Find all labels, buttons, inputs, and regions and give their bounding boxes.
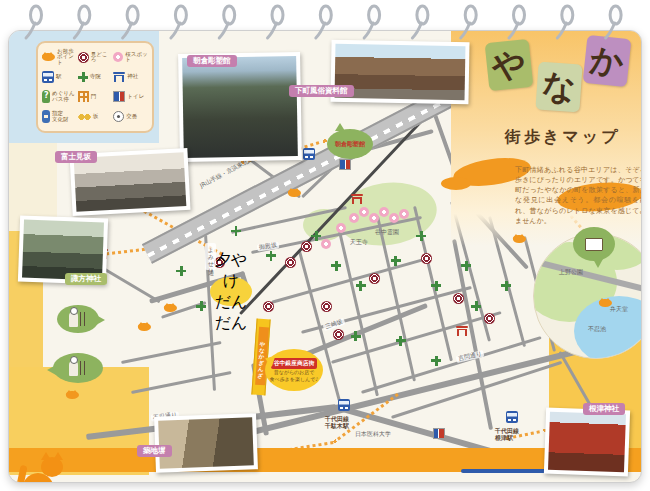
bus-icon bbox=[42, 90, 50, 103]
cloud-blob bbox=[441, 177, 471, 190]
photo-tsukijibei-image bbox=[158, 417, 254, 468]
legend-item: 交番 bbox=[113, 107, 148, 126]
shitamachi-map-bubble bbox=[573, 227, 615, 261]
sight-icon bbox=[78, 52, 89, 63]
badge-icon bbox=[263, 301, 274, 312]
bubble-tail bbox=[42, 365, 56, 375]
legend-item: めぐりん バス停 bbox=[42, 88, 77, 107]
photo-tsukijibei bbox=[154, 413, 258, 473]
flower-icon bbox=[321, 239, 331, 249]
cat-icon bbox=[66, 391, 79, 399]
bubble-tail bbox=[96, 315, 110, 325]
cat-ear bbox=[53, 447, 63, 460]
temple-icon bbox=[351, 331, 361, 341]
legend-item-label: めぐりん バス停 bbox=[52, 91, 75, 103]
map-description: 下町情緒あふれる谷中エリアは、そぞろ歩きにぴったりのエリアです。かつて寺町だった… bbox=[515, 165, 642, 226]
temple-icon bbox=[356, 281, 366, 291]
road-line bbox=[377, 216, 416, 382]
flower-icon bbox=[369, 213, 379, 223]
cat-icon bbox=[138, 323, 151, 331]
station-icon bbox=[42, 71, 54, 83]
cat-head bbox=[41, 457, 63, 477]
legend-item-label: 駅 bbox=[56, 74, 62, 80]
character-bubble bbox=[53, 353, 103, 383]
temple-icon bbox=[196, 301, 206, 311]
museum-illustration bbox=[585, 238, 603, 251]
temple-icon bbox=[176, 266, 186, 276]
cat-ear bbox=[41, 447, 51, 460]
toilet-icon bbox=[433, 428, 445, 439]
bubble-tail bbox=[593, 259, 603, 273]
temple-icon bbox=[501, 281, 511, 291]
station-icon bbox=[338, 399, 350, 411]
gate-icon bbox=[78, 91, 89, 102]
badge-icon bbox=[285, 257, 296, 268]
photo-nezu-image bbox=[548, 412, 626, 473]
yanaka-ginza-callout: 谷中銀座商店街 昔ながらのお店で 食べ歩きを楽しんで♪ bbox=[265, 349, 323, 391]
vertical-text-marks bbox=[80, 361, 88, 375]
road-line bbox=[121, 341, 221, 363]
legend-item-label: 見どころ bbox=[91, 52, 113, 64]
temple-icon bbox=[431, 356, 441, 366]
photo-asakura-label: 朝倉彫塑館 bbox=[187, 55, 237, 67]
legend-item: 見どころ bbox=[78, 48, 113, 67]
badge-icon bbox=[369, 273, 380, 284]
culture-icon bbox=[42, 110, 50, 123]
legend-item-label: お散歩 ポイント bbox=[57, 49, 77, 66]
temple-icon bbox=[416, 231, 426, 241]
legend-item-label: 神社 bbox=[127, 74, 138, 80]
legend-item: トイレ bbox=[113, 88, 148, 107]
asakura-bubble-label: 朝倉彫塑館 bbox=[335, 141, 365, 148]
legend-item-label: 桜スポット bbox=[125, 52, 148, 64]
slope-icon bbox=[78, 113, 91, 121]
legend-item: 指定 文化財 bbox=[42, 107, 77, 126]
binder-rings bbox=[0, 0, 650, 46]
map-text-label: 不忍池 bbox=[586, 326, 608, 333]
flower-icon bbox=[336, 223, 346, 233]
map-text-label: 谷中霊園 bbox=[373, 229, 401, 236]
character-bubble bbox=[57, 305, 99, 333]
title-char: な bbox=[541, 63, 578, 110]
cat-icon bbox=[164, 304, 177, 312]
callout-line: 食べ歩きを楽しんで♪ bbox=[270, 377, 319, 383]
torii-icon bbox=[456, 326, 468, 336]
legend-item: 駅 bbox=[42, 68, 77, 87]
photo-asakura bbox=[178, 52, 302, 162]
title-char-tile: や bbox=[485, 39, 534, 91]
legend-item-label: 交番 bbox=[126, 114, 137, 120]
map-text-label: 御殿坂 bbox=[257, 242, 280, 252]
badge-icon bbox=[453, 293, 464, 304]
shrine-icon bbox=[113, 72, 125, 82]
badge-icon bbox=[301, 241, 312, 252]
road-line bbox=[131, 371, 231, 393]
legend-item: 神社 bbox=[113, 68, 148, 87]
photo-nezu bbox=[544, 408, 630, 477]
flower-icon bbox=[379, 207, 389, 217]
badge-icon bbox=[321, 301, 332, 312]
station-icon bbox=[506, 411, 518, 423]
map-text-label: 言問通り bbox=[456, 350, 485, 363]
legend-item: 桜スポット bbox=[113, 48, 148, 67]
map-legend: お散歩 ポイント見どころ桜スポット駅寺院神社めぐりん バス停門トイレ指定 文化財… bbox=[36, 41, 154, 133]
title-char: や bbox=[490, 41, 528, 89]
temple-icon bbox=[396, 336, 406, 346]
temple-icon bbox=[266, 251, 276, 261]
photo-asakura-image bbox=[182, 56, 298, 158]
temple-icon bbox=[471, 301, 481, 311]
photo-tsukijibei-label: 築地塀 bbox=[137, 445, 172, 457]
map-text-label: 天王寺 bbox=[348, 239, 370, 246]
callout-line: 昔ながらのお店で bbox=[274, 370, 315, 376]
cat-icon bbox=[42, 53, 55, 61]
callout-title: 谷中銀座商店街 bbox=[271, 358, 318, 369]
temple-icon bbox=[331, 261, 341, 271]
photo-shitamachi-label: 下町風俗資料館 bbox=[289, 85, 354, 97]
koban-icon bbox=[113, 111, 124, 122]
legend-item-label: 指定 文化財 bbox=[52, 111, 69, 123]
torii-icon bbox=[351, 194, 363, 204]
badge-icon bbox=[484, 313, 495, 324]
toilet-icon bbox=[113, 91, 125, 102]
flower-icon bbox=[389, 213, 399, 223]
person-illustration bbox=[69, 361, 78, 376]
vertical-text-marks bbox=[80, 312, 88, 326]
legend-item: お散歩 ポイント bbox=[42, 48, 77, 67]
chiyoda-subway-line bbox=[461, 469, 555, 473]
flower-icon bbox=[349, 213, 359, 223]
asakura-map-bubble: 朝倉彫塑館 bbox=[327, 129, 373, 159]
map-text-label: 弁天堂 bbox=[608, 306, 630, 313]
temple-icon bbox=[431, 281, 441, 291]
legend-item-label: 坂 bbox=[93, 114, 99, 120]
map-text-label: 三崎坂 bbox=[322, 318, 345, 331]
cat-silhouette bbox=[19, 451, 77, 483]
toilet-icon bbox=[339, 159, 351, 170]
temple-icon bbox=[461, 261, 471, 271]
station-label: 千代田線 千駄木駅 bbox=[325, 415, 349, 429]
legend-item: 寺院 bbox=[78, 68, 113, 87]
temple-icon bbox=[391, 256, 401, 266]
legend-item-label: トイレ bbox=[127, 94, 144, 100]
legend-item: 門 bbox=[78, 88, 113, 107]
title-char-tile: な bbox=[535, 62, 582, 113]
cat-icon bbox=[288, 189, 301, 197]
flower-icon bbox=[359, 207, 369, 217]
legend-item: 坂 bbox=[78, 107, 113, 126]
yuyake-dandan-bubble: 夕やけ だんだん bbox=[210, 277, 252, 306]
sakura-icon bbox=[113, 52, 123, 62]
temple-icon bbox=[78, 72, 88, 82]
station-icon bbox=[303, 148, 315, 160]
photo-nezu-label: 根津神社 bbox=[583, 403, 625, 415]
legend-item-label: 門 bbox=[91, 94, 97, 100]
flower-icon bbox=[399, 209, 409, 219]
map-page: JR日暮里駅千代田線 千駄木駅千代田線 根津駅JR山手線・京浜東北線御殿坂よみせ… bbox=[8, 30, 642, 483]
temple-icon bbox=[311, 231, 321, 241]
cat-icon bbox=[513, 235, 526, 243]
bubble-tail bbox=[335, 118, 345, 131]
person-illustration bbox=[69, 312, 78, 327]
station-label: 千代田線 根津駅 bbox=[495, 427, 519, 441]
map-text-label: 日本医科大学 bbox=[353, 431, 393, 438]
photo-suwa-image bbox=[22, 220, 104, 281]
photo-fujimizaka-label: 富士見坂 bbox=[55, 151, 97, 163]
map-subtitle: 街歩きマップ bbox=[505, 127, 621, 148]
yuyake-dandan-label: 夕やけ だんだん bbox=[210, 250, 252, 334]
map-text-label: 上野公園 bbox=[557, 269, 585, 276]
photo-suwa-label: 諏方神社 bbox=[65, 273, 107, 285]
badge-icon bbox=[333, 329, 344, 340]
legend-item-label: 寺院 bbox=[90, 74, 101, 80]
badge-icon bbox=[421, 253, 432, 264]
temple-icon bbox=[231, 226, 241, 236]
photo-shitamachi-image bbox=[335, 44, 466, 100]
